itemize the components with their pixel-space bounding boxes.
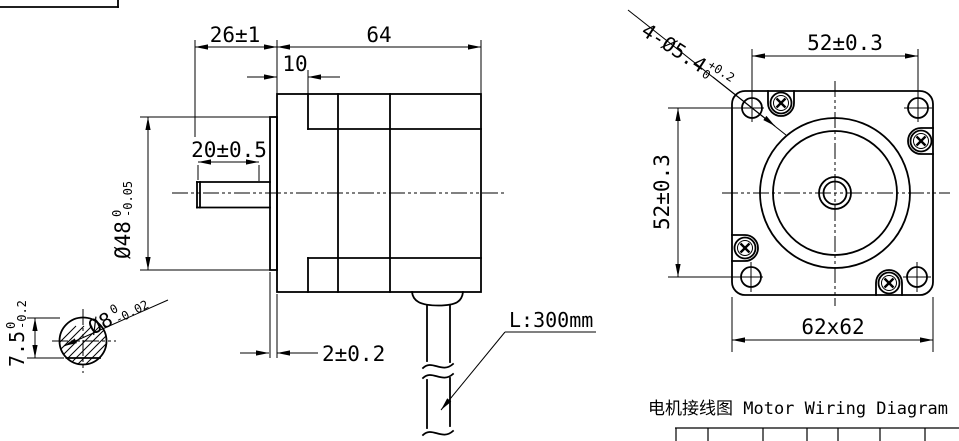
screw-icon (911, 131, 932, 152)
dim-shaft-total-text: 26±1 (210, 23, 261, 47)
technical-drawing: 26±1 64 10 20±0.5 2±0.2 L:300mm Ø48 0 -0… (0, 0, 959, 441)
dim-hole-spacing-v-text: 52±0.3 (650, 154, 674, 230)
svg-text:Ø48: Ø48 (111, 221, 135, 259)
dim-hole-spacing-h-text: 52±0.3 (807, 31, 883, 55)
screw-icon (771, 93, 792, 114)
drawing-canvas: 26±1 64 10 20±0.5 2±0.2 L:300mm Ø48 0 -0… (0, 0, 959, 441)
screw-icon (735, 238, 756, 259)
svg-text:7.5: 7.5 (5, 331, 29, 367)
shaft-section-detail: 7.5 0 -0.2 Ø8 0 -0.02 (4, 288, 168, 373)
dim-flange-text: 62x62 (801, 315, 864, 339)
svg-text:4-Ø5.4: 4-Ø5.4 (637, 18, 711, 77)
dim-boss-height-text: 2±0.2 (322, 342, 385, 366)
motor-shaft (197, 182, 270, 208)
sheet-border-fragment (0, 0, 118, 7)
svg-text:-0.2: -0.2 (15, 300, 29, 329)
dim-flat-text: 7.5 0 -0.2 (4, 300, 29, 367)
dim-pilot-depth-text: 10 (282, 52, 307, 76)
svg-text:-0.05: -0.05 (121, 181, 135, 217)
wiring-diagram-title: 电机接线图 Motor Wiring Diagram (648, 399, 948, 419)
svg-text:52±0.3: 52±0.3 (650, 154, 674, 230)
svg-text:-0.02: -0.02 (113, 297, 151, 326)
dim-body-length-text: 64 (366, 23, 391, 47)
cable-length-label: L:300mm (509, 308, 593, 332)
front-view: 52±0.3 52±0.3 62x62 4-Ø5.4 +0.2 0 (628, 10, 950, 352)
dim-shaft-dia-text: Ø8 0 -0.02 (84, 288, 151, 340)
dim-shaft-length-text: 20±0.5 (191, 138, 267, 162)
wiring-section: 电机接线图 Motor Wiring Diagram (648, 399, 959, 441)
screw-icon (879, 273, 900, 294)
wiring-table (675, 428, 959, 441)
motor-cable (412, 292, 463, 435)
dim-mounting-holes-text: 4-Ø5.4 +0.2 0 (637, 17, 737, 94)
side-view: 26±1 64 10 20±0.5 2±0.2 L:300mm Ø48 0 -0… (110, 23, 596, 435)
dim-pilot-dia-text: Ø48 0 -0.05 (110, 181, 135, 259)
